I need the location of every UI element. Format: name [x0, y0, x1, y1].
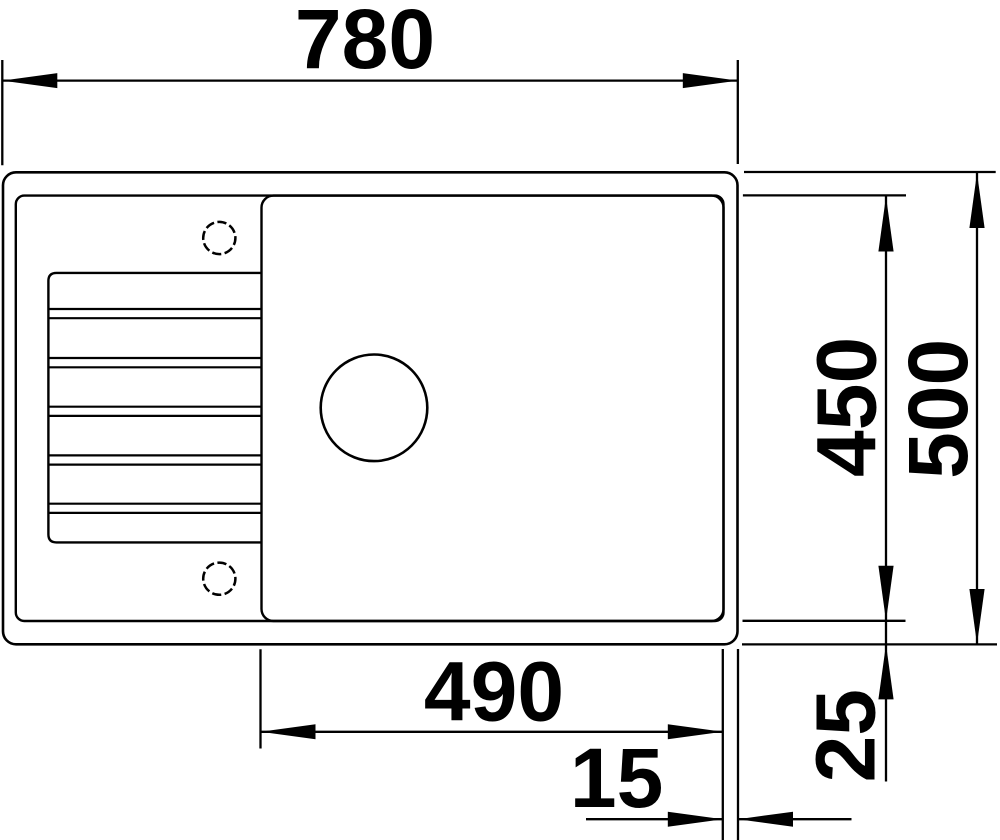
- svg-text:450: 450: [799, 337, 893, 477]
- svg-text:500: 500: [891, 339, 985, 479]
- svg-text:15: 15: [570, 731, 663, 825]
- svg-text:490: 490: [424, 645, 564, 739]
- svg-text:25: 25: [799, 689, 893, 782]
- svg-text:780: 780: [295, 0, 435, 86]
